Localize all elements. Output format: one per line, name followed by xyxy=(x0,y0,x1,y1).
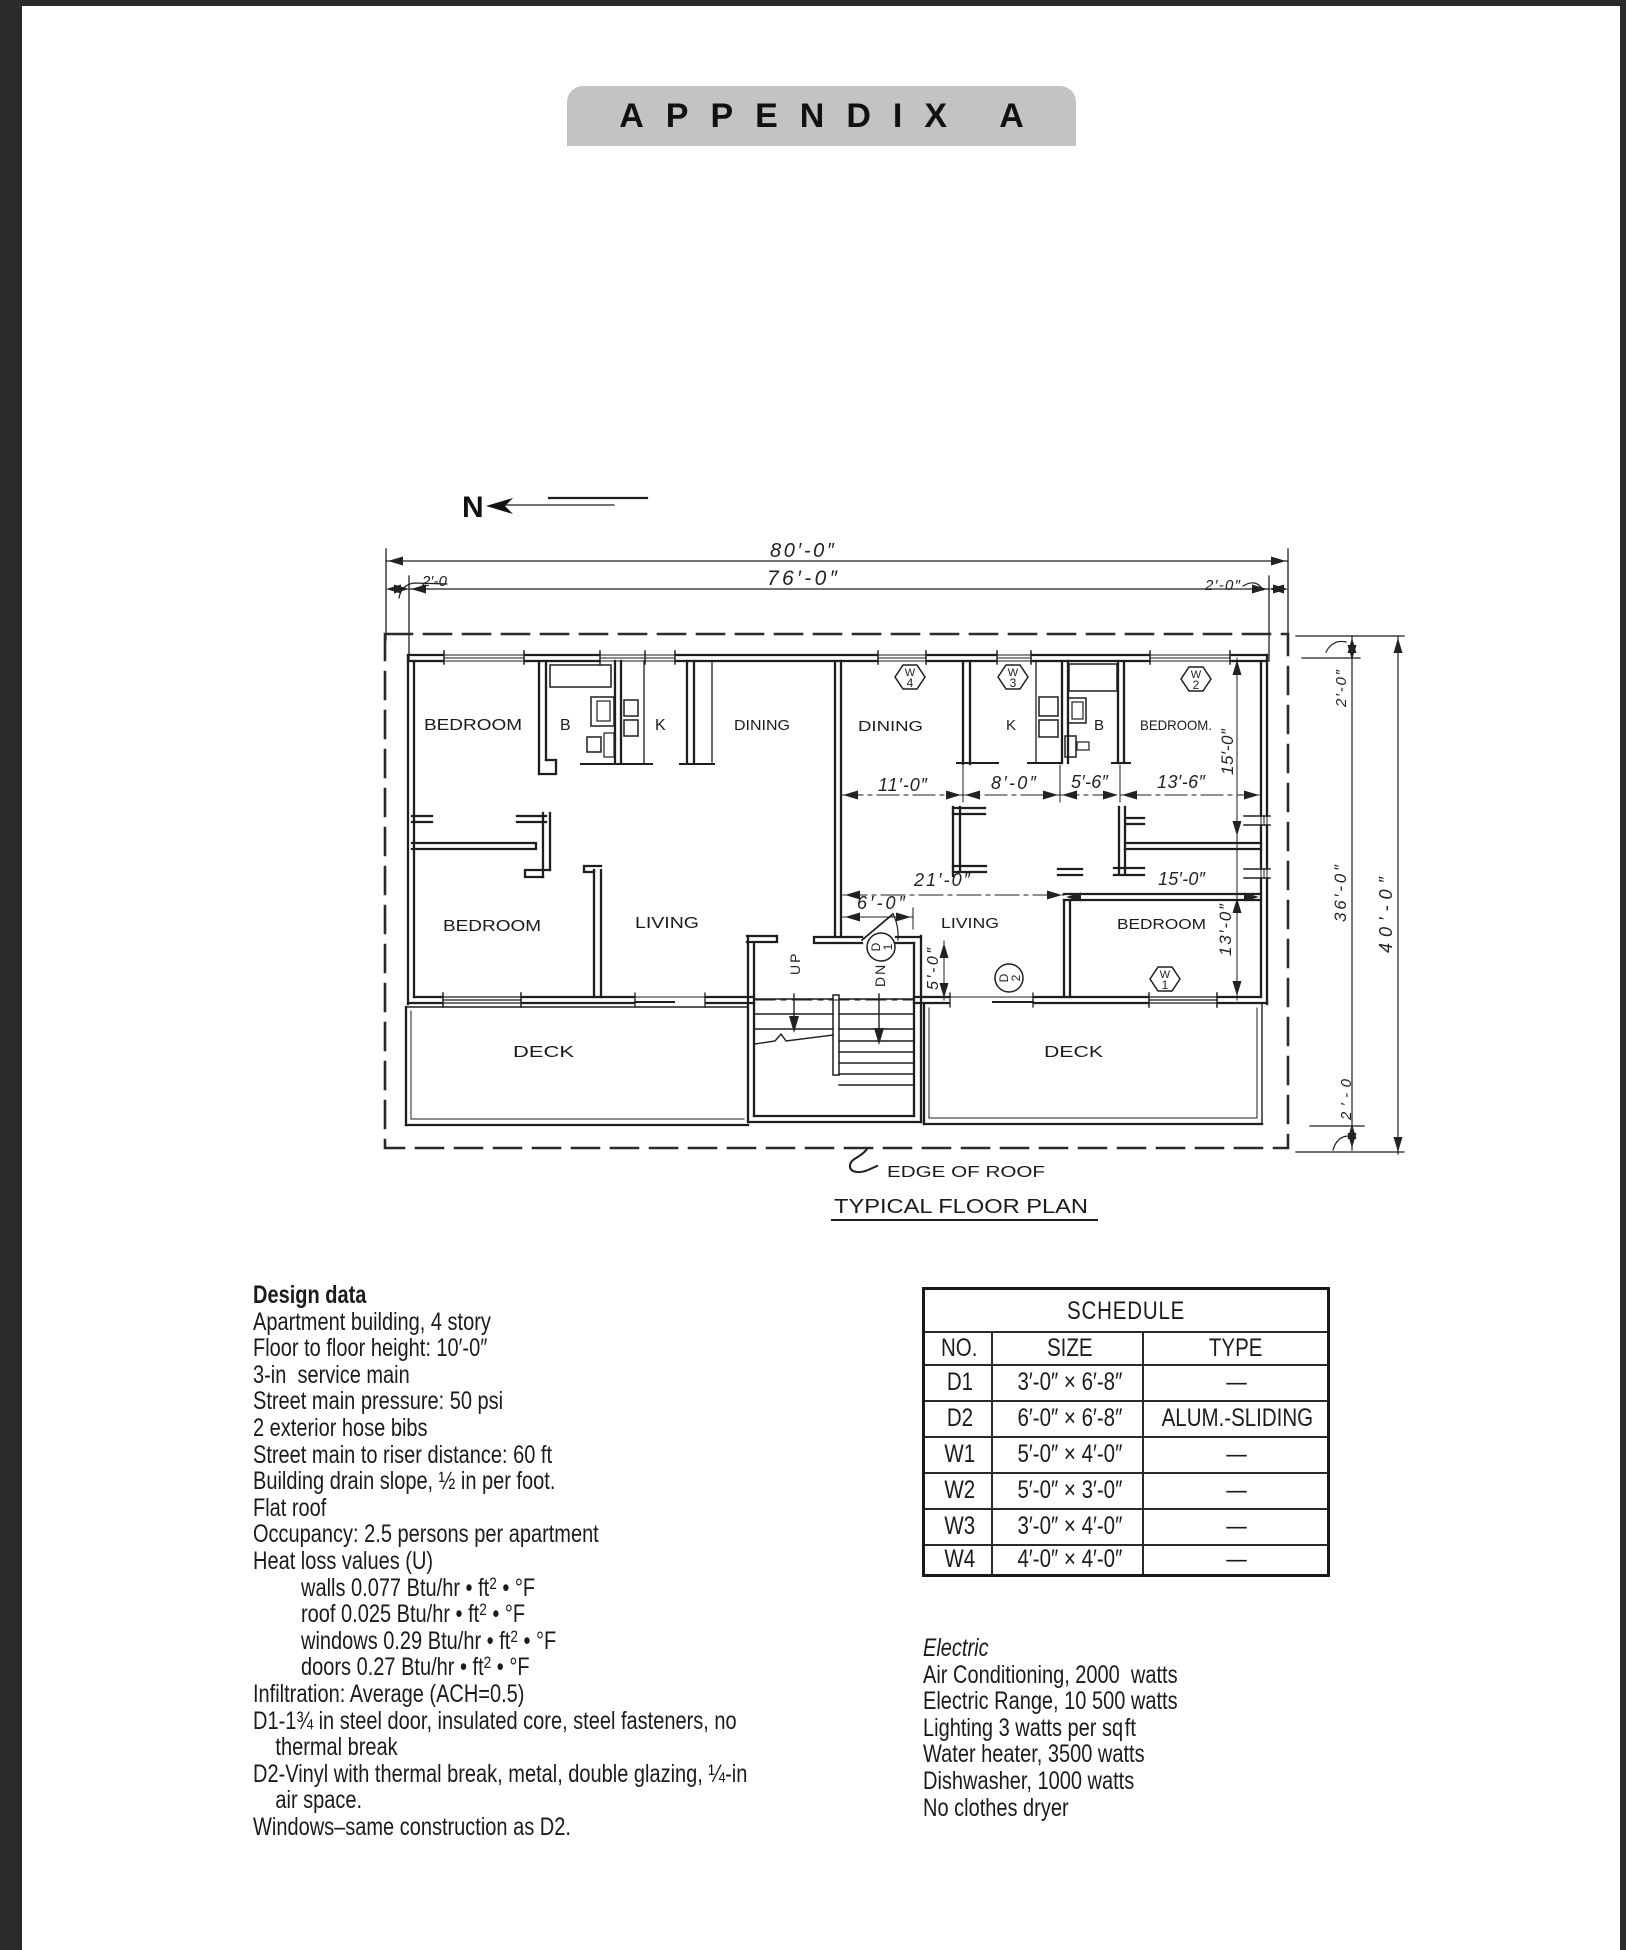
svg-text:4: 4 xyxy=(907,676,914,690)
svg-text:13′-6″: 13′-6″ xyxy=(1157,772,1206,792)
svg-text:N: N xyxy=(462,491,484,524)
svg-text:36′-0″: 36′-0″ xyxy=(1331,864,1350,922)
svg-text:15′-0″: 15′-0″ xyxy=(1158,869,1206,889)
svg-text:BEDROOM: BEDROOM xyxy=(1117,916,1206,933)
svg-text:1: 1 xyxy=(1162,978,1169,992)
svg-text:76′-0″: 76′-0″ xyxy=(767,567,839,590)
svg-text:8′-0″: 8′-0″ xyxy=(991,773,1037,793)
svg-text:BEDROOM.: BEDROOM. xyxy=(1140,717,1212,733)
svg-text:LIVING: LIVING xyxy=(635,915,699,932)
svg-text:EDGE OF ROOF: EDGE OF ROOF xyxy=(887,1164,1045,1181)
svg-text:DINING: DINING xyxy=(734,717,790,734)
svg-text:DINING: DINING xyxy=(858,718,923,735)
svg-text:DECK: DECK xyxy=(513,1044,574,1061)
svg-text:LIVING: LIVING xyxy=(941,915,999,932)
svg-text:5′-6″: 5′-6″ xyxy=(1071,772,1109,792)
svg-text:B: B xyxy=(560,717,571,734)
svg-text:2′-0″: 2′-0″ xyxy=(1333,669,1350,708)
svg-text:B: B xyxy=(1094,717,1104,734)
svg-text:2′-0″: 2′-0″ xyxy=(1204,577,1241,594)
svg-text:40′-0″: 40′-0″ xyxy=(1376,876,1396,953)
svg-text:1: 1 xyxy=(881,943,895,950)
svg-text:BEDROOM: BEDROOM xyxy=(424,717,522,734)
svg-text:TYPICAL FLOOR PLAN: TYPICAL FLOOR PLAN xyxy=(834,1196,1088,1218)
svg-text:3: 3 xyxy=(1010,676,1017,690)
svg-text:DN: DN xyxy=(872,963,888,987)
svg-text:80′-0″: 80′-0″ xyxy=(770,540,835,562)
svg-text:5′-0″: 5′-0″ xyxy=(925,947,942,990)
svg-text:DECK: DECK xyxy=(1044,1044,1103,1061)
svg-text:2′-0: 2′-0 xyxy=(421,573,448,590)
svg-text:13′-0″: 13′-0″ xyxy=(1216,903,1235,956)
svg-text:15′-0″: 15′-0″ xyxy=(1218,728,1237,775)
svg-text:BEDROOM: BEDROOM xyxy=(443,918,541,935)
svg-text:K: K xyxy=(1006,717,1016,734)
svg-text:K: K xyxy=(655,717,666,734)
svg-text:6′-0″: 6′-0″ xyxy=(857,893,906,913)
svg-text:11′-0″: 11′-0″ xyxy=(878,775,928,795)
svg-text:2: 2 xyxy=(1193,678,1200,692)
svg-text:2: 2 xyxy=(1009,974,1023,981)
svg-text:UP: UP xyxy=(787,952,803,975)
